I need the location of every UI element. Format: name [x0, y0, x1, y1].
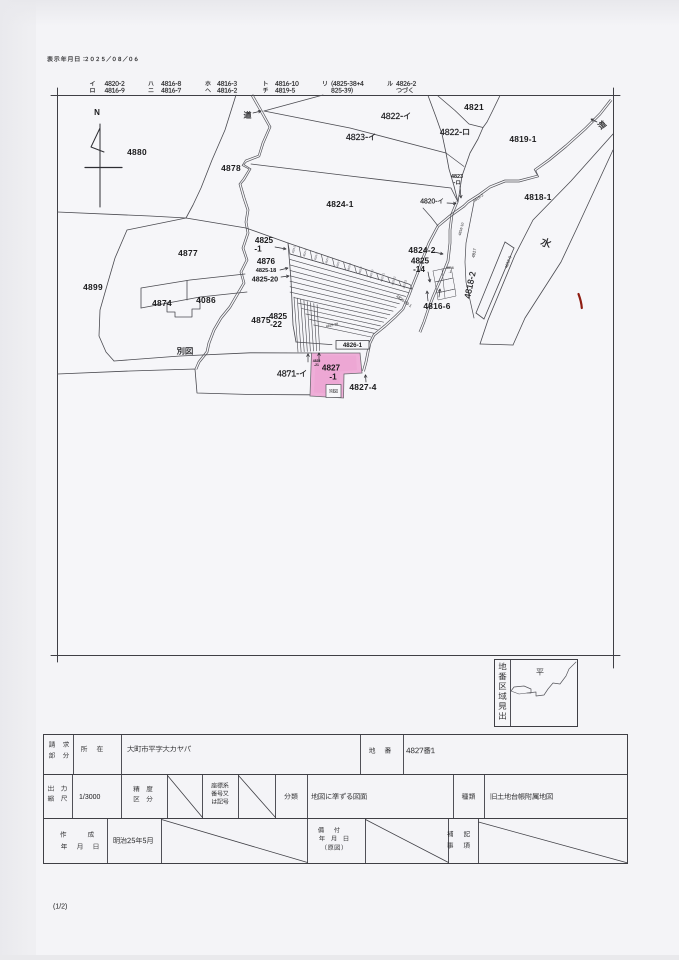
- svg-text:4824-2: 4824-2: [408, 245, 435, 255]
- svg-text:4827: 4827: [322, 363, 341, 372]
- svg-text:4816-6: 4816-6: [423, 301, 450, 311]
- svg-text:-21: -21: [314, 363, 319, 367]
- svg-text:(1/2): (1/2): [53, 903, 67, 910]
- svg-text:4086: 4086: [196, 295, 216, 305]
- svg-text:-14: -14: [413, 265, 425, 274]
- svg-text:N: N: [94, 108, 100, 117]
- svg-text:4825-20: 4825-20: [252, 275, 278, 284]
- svg-text:4823: 4823: [451, 174, 463, 180]
- svg-text:-1: -1: [254, 244, 262, 253]
- svg-text:4825-18: 4825-18: [256, 268, 277, 274]
- svg-text:4821: 4821: [464, 102, 484, 112]
- svg-text:-22: -22: [270, 320, 282, 329]
- svg-text:4819-1: 4819-1: [509, 134, 536, 144]
- svg-text:4818-1: 4818-1: [524, 192, 551, 202]
- svg-text:4899: 4899: [83, 282, 103, 292]
- svg-text:4880: 4880: [127, 147, 147, 157]
- svg-text:-1: -1: [448, 270, 451, 274]
- svg-text:4827-4: 4827-4: [349, 382, 376, 392]
- svg-text:1/3000: 1/3000: [79, 794, 101, 801]
- svg-text:4874: 4874: [152, 298, 172, 308]
- svg-text:4824-1: 4824-1: [326, 199, 353, 209]
- svg-text:-1: -1: [329, 372, 337, 381]
- svg-text:4826-1: 4826-1: [343, 342, 363, 349]
- svg-text:4878: 4878: [221, 163, 241, 173]
- svg-text:4876: 4876: [257, 257, 276, 266]
- svg-text:4877: 4877: [178, 248, 198, 258]
